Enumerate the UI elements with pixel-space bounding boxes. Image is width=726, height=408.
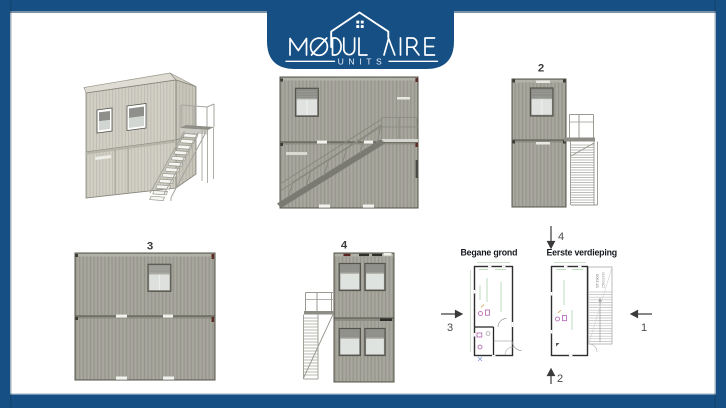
svg-text:1580x2430: 1580x2430 (602, 272, 606, 288)
svg-text:UNITS: UNITS (338, 57, 387, 67)
svg-text:3: 3 (447, 322, 453, 334)
svg-text:2: 2 (538, 63, 544, 75)
svg-text:4: 4 (341, 240, 348, 252)
svg-text:Begane grond: Begane grond (461, 248, 518, 258)
svg-text:1: 1 (641, 322, 647, 334)
svg-text:ST1900: ST1900 (595, 273, 600, 288)
svg-text:3: 3 (147, 241, 153, 253)
svg-text:2: 2 (557, 373, 563, 385)
svg-text:Eerste verdieping: Eerste verdieping (547, 248, 617, 258)
svg-text:4: 4 (558, 231, 564, 243)
